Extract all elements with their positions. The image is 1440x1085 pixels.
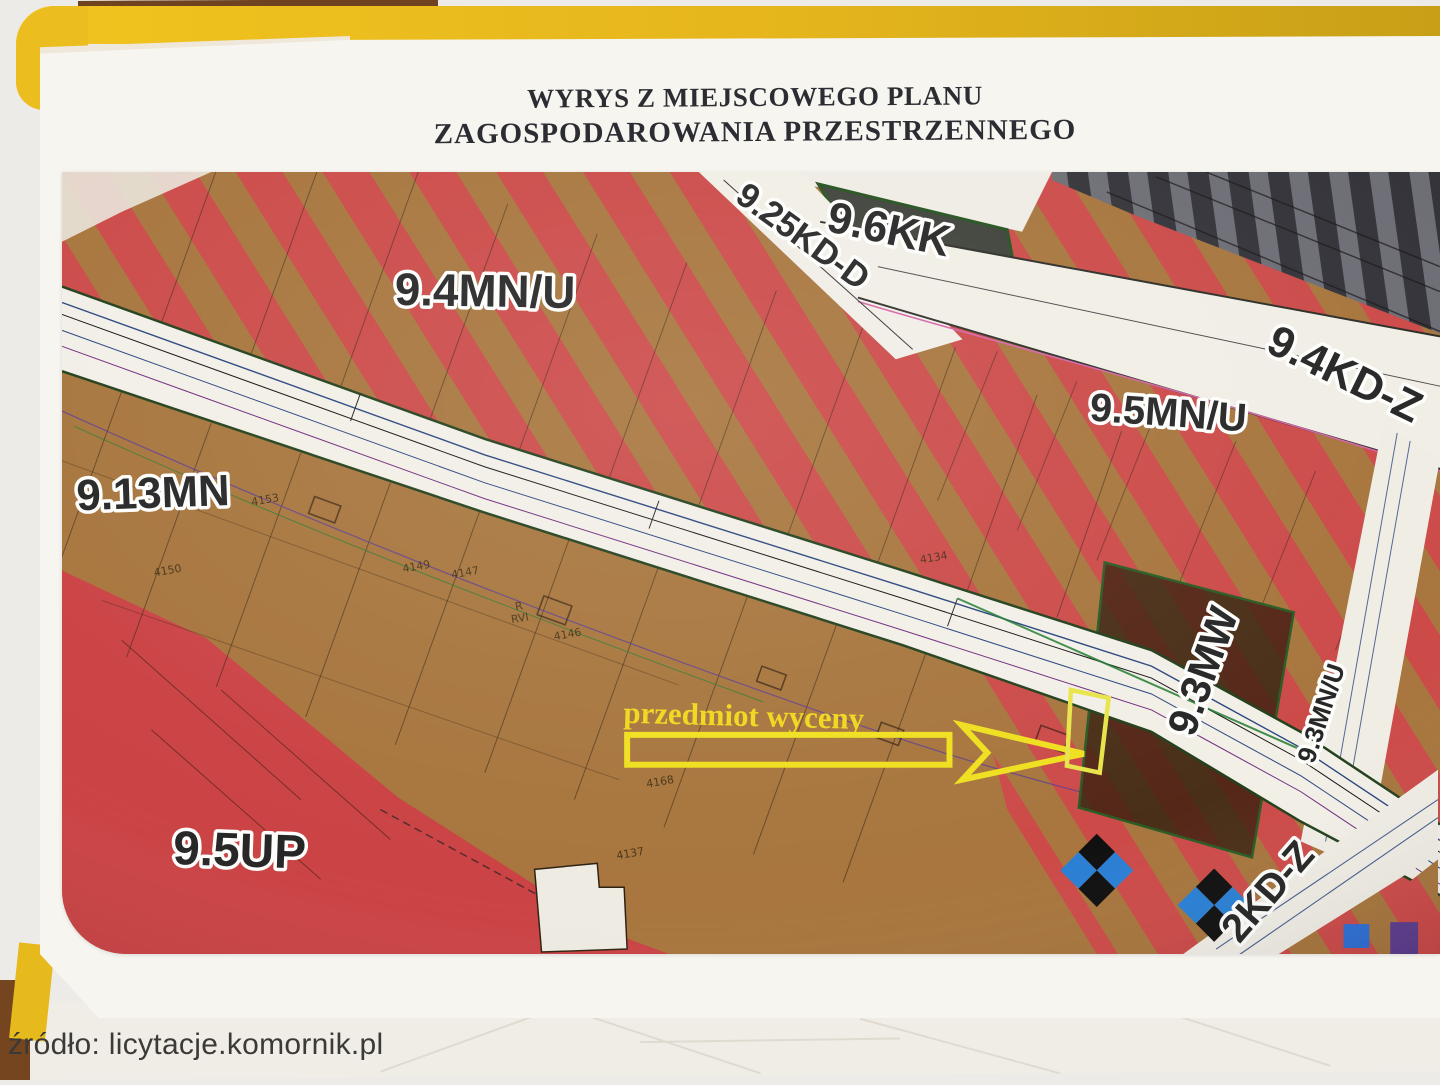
zoning-map: 4149 4147 4146 4153 4150 4134 R RVI 4168… bbox=[62, 172, 1440, 954]
photo-lighting-overlay bbox=[62, 172, 1440, 954]
source-caption: źródło: licytacje.komornik.pl bbox=[8, 1028, 384, 1062]
zoning-map-svg: 4149 4147 4146 4153 4150 4134 R RVI 4168… bbox=[62, 172, 1440, 954]
